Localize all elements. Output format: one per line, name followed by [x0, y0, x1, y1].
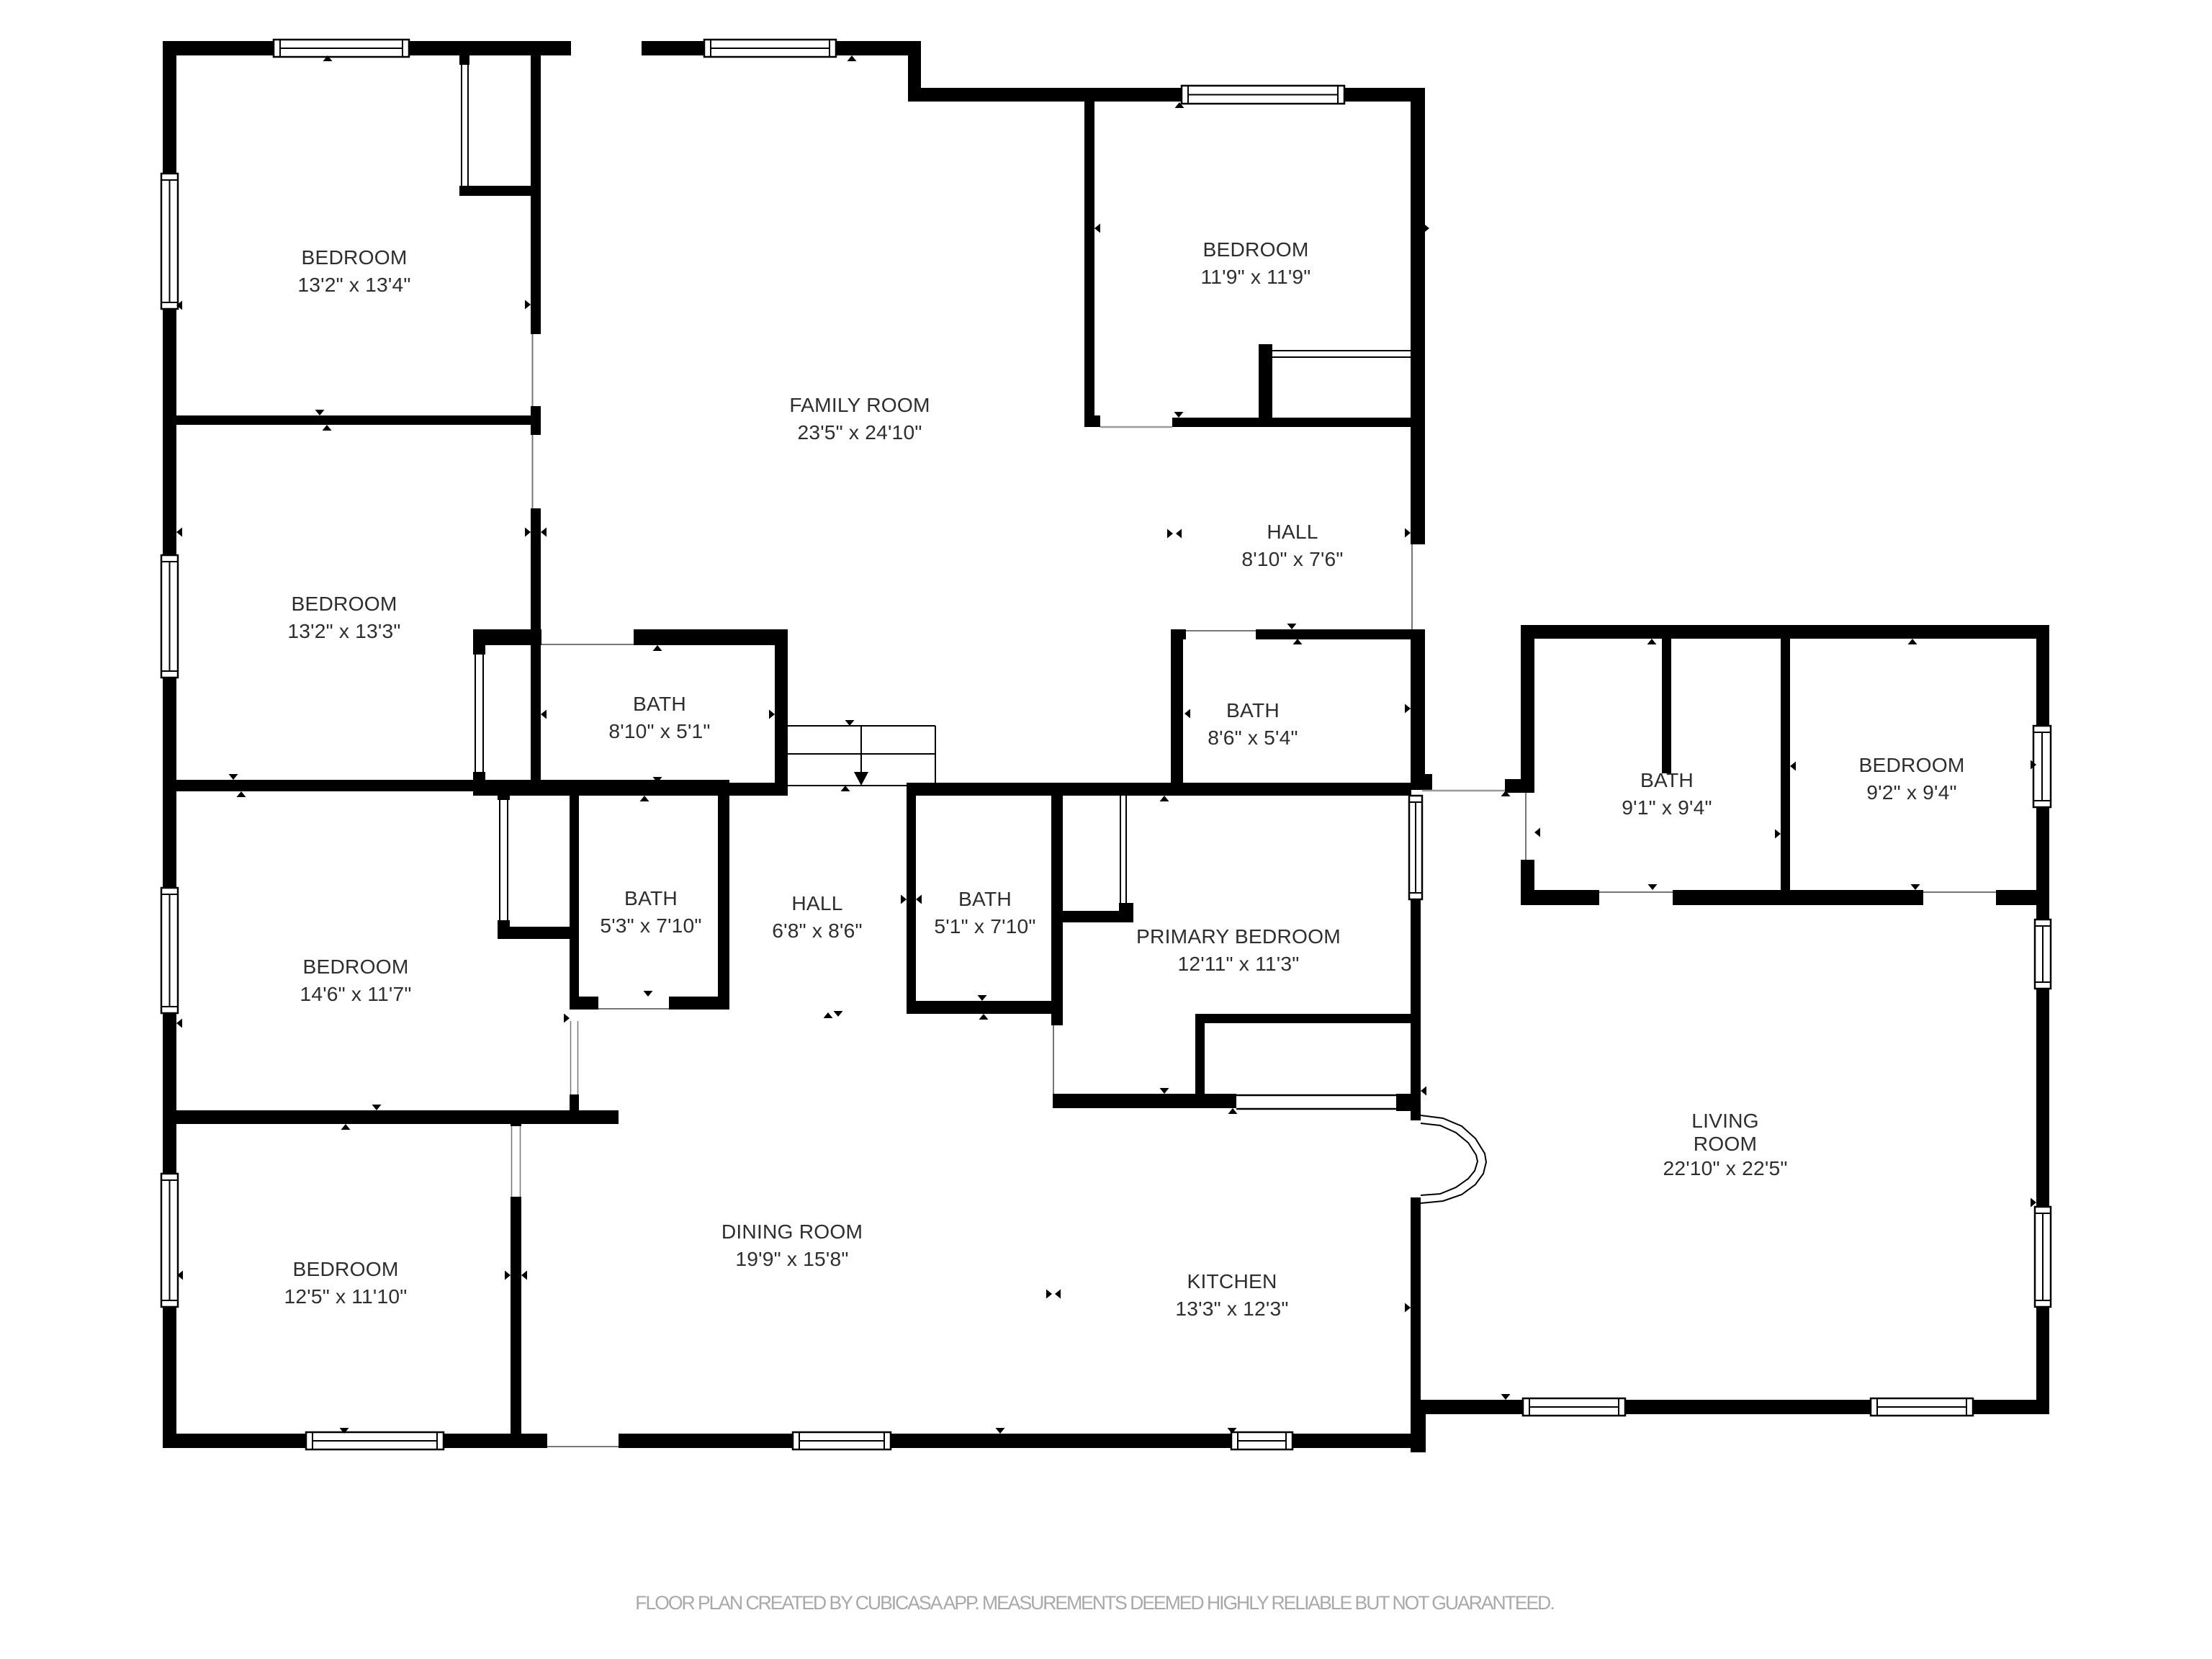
svg-text:6'8" x 8'6": 6'8" x 8'6": [772, 919, 862, 942]
svg-text:BEDROOM: BEDROOM: [301, 246, 407, 269]
svg-text:8'10" x 5'1": 8'10" x 5'1": [608, 719, 710, 742]
svg-text:13'2" x 13'4": 13'2" x 13'4": [297, 273, 410, 296]
svg-text:9'2" x 9'4": 9'2" x 9'4": [1866, 781, 1956, 804]
svg-text:BATH: BATH: [1226, 698, 1280, 721]
svg-text:BATH: BATH: [1640, 768, 1694, 791]
svg-text:14'6" x 11'7": 14'6" x 11'7": [300, 982, 411, 1005]
svg-text:9'1" x 9'4": 9'1" x 9'4": [1622, 796, 1712, 819]
svg-text:8'6" x 5'4": 8'6" x 5'4": [1208, 726, 1298, 749]
svg-text:13'3" x 12'3": 13'3" x 12'3": [1175, 1297, 1288, 1320]
svg-text:FAMILY ROOM: FAMILY ROOM: [789, 393, 930, 416]
svg-text:5'1" x 7'10": 5'1" x 7'10": [934, 914, 1035, 938]
svg-text:8'10" x 7'6": 8'10" x 7'6": [1241, 547, 1343, 570]
svg-text:LIVING: LIVING: [1691, 1109, 1759, 1132]
svg-text:5'3" x 7'10": 5'3" x 7'10": [600, 914, 701, 937]
svg-text:BATH: BATH: [633, 692, 686, 715]
svg-text:PRIMARY BEDROOM: PRIMARY BEDROOM: [1136, 925, 1341, 948]
svg-text:13'2" x 13'3": 13'2" x 13'3": [287, 619, 400, 642]
svg-text:HALL: HALL: [1267, 520, 1318, 543]
svg-text:BATH: BATH: [958, 887, 1012, 910]
svg-text:12'5" x 11'10": 12'5" x 11'10": [284, 1285, 408, 1308]
svg-text:BEDROOM: BEDROOM: [1202, 238, 1308, 261]
svg-text:BEDROOM: BEDROOM: [292, 1257, 398, 1280]
svg-text:22'10" x 22'5": 22'10" x 22'5": [1663, 1156, 1787, 1179]
svg-text:19'9" x 15'8": 19'9" x 15'8": [735, 1247, 848, 1270]
svg-text:BEDROOM: BEDROOM: [1858, 753, 1964, 776]
svg-text:BEDROOM: BEDROOM: [291, 592, 397, 615]
svg-text:11'9" x 11'9": 11'9" x 11'9": [1200, 265, 1310, 288]
svg-text:HALL: HALL: [791, 891, 842, 914]
svg-text:FLOOR PLAN CREATED BY CUBICASA: FLOOR PLAN CREATED BY CUBICASA APP. MEAS…: [635, 1592, 1553, 1614]
svg-text:DINING ROOM: DINING ROOM: [721, 1220, 863, 1243]
svg-text:ROOM: ROOM: [1694, 1132, 1758, 1155]
svg-text:BEDROOM: BEDROOM: [302, 955, 408, 978]
svg-text:23'5" x 24'10": 23'5" x 24'10": [797, 421, 922, 444]
svg-text:KITCHEN: KITCHEN: [1187, 1269, 1277, 1292]
svg-text:12'11" x 11'3": 12'11" x 11'3": [1178, 952, 1300, 975]
svg-text:BATH: BATH: [624, 886, 678, 909]
